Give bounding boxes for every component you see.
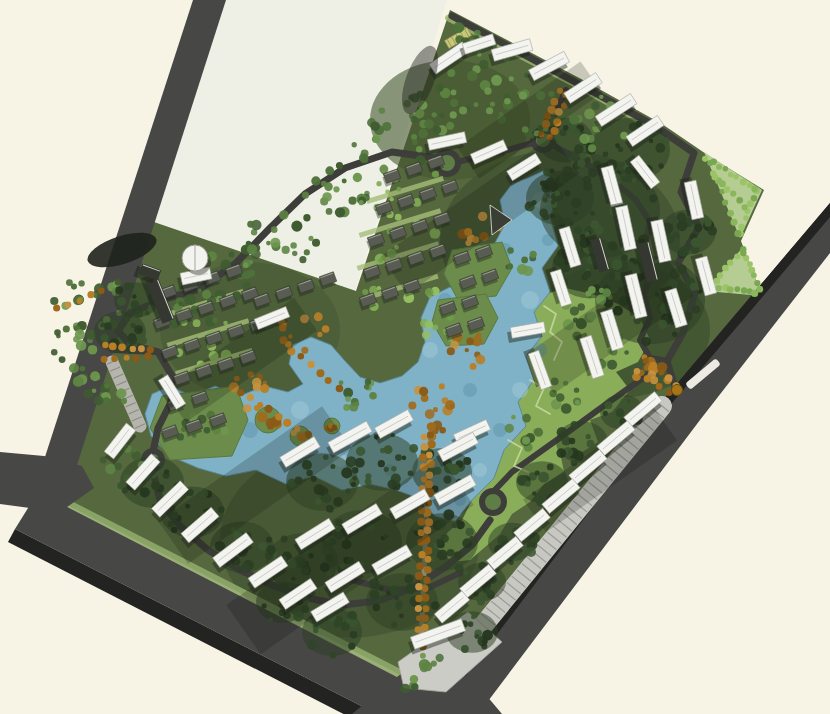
site-plan-map — [0, 0, 830, 714]
roundabout — [482, 491, 504, 513]
entry-markers — [672, 385, 683, 396]
gate-marker — [672, 385, 683, 396]
master-plan-screenshot — [0, 0, 830, 714]
